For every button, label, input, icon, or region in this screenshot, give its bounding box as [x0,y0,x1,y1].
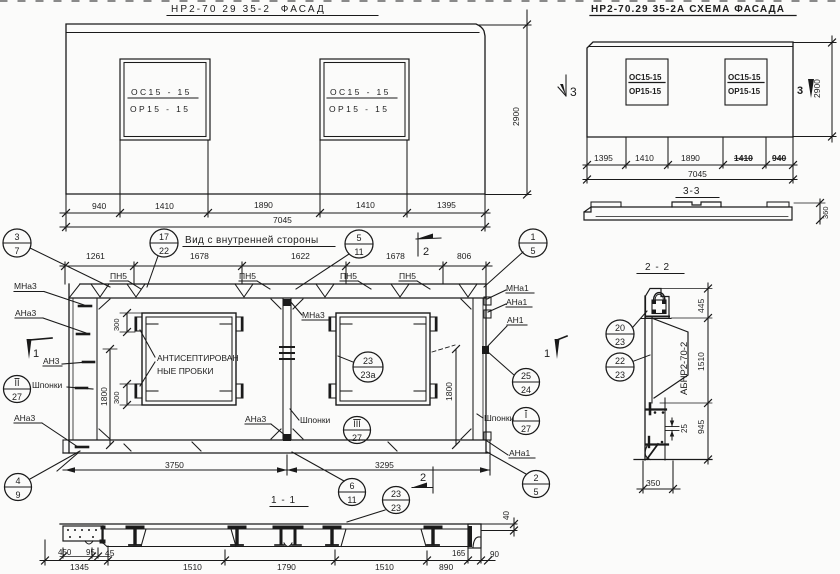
svg-text:360: 360 [821,206,830,219]
svg-text:ОС15 - 15: ОС15 - 15 [131,87,192,97]
svg-text:1410: 1410 [734,153,753,163]
svg-text:27: 27 [12,392,22,402]
svg-text:1622: 1622 [291,251,310,261]
svg-text:АБНР2-70-2: АБНР2-70-2 [679,342,690,395]
svg-text:445: 445 [696,299,706,313]
svg-text:450: 450 [58,548,72,557]
svg-text:1890: 1890 [681,153,700,163]
svg-text:940: 940 [772,153,786,163]
svg-text:1678: 1678 [190,251,209,261]
svg-text:1410: 1410 [356,200,375,210]
svg-text:3-3: 3-3 [683,186,700,197]
svg-text:1510: 1510 [696,352,706,371]
svg-text:300: 300 [112,318,121,331]
svg-text:5: 5 [356,233,361,243]
svg-text:23: 23 [615,370,625,380]
svg-text:АН1: АН1 [507,315,524,325]
svg-text:ОР15-15: ОР15-15 [629,87,662,96]
svg-text:27: 27 [352,433,362,443]
svg-text:ОС15-15: ОС15-15 [629,73,662,82]
svg-text:НР2-70 29 35-2 ФАСАД: НР2-70 29 35-2 ФАСАД [171,4,326,15]
svg-text:Шпонки: Шпонки [300,415,331,425]
svg-text:1: 1 [530,232,535,242]
svg-text:I: I [525,410,528,420]
svg-text:95: 95 [86,548,95,557]
svg-text:1: 1 [544,348,550,360]
svg-text:АНа3: АНа3 [14,413,36,423]
svg-text:90: 90 [490,550,499,559]
svg-text:МНа3: МНа3 [302,310,325,320]
svg-text:165: 165 [452,549,466,558]
svg-text:22: 22 [615,356,625,366]
svg-text:23: 23 [363,356,373,366]
svg-text:22: 22 [159,246,169,256]
svg-text:НЫЕ ПРОБКИ: НЫЕ ПРОБКИ [157,366,214,376]
svg-text:7045: 7045 [688,169,707,179]
svg-text:2900: 2900 [511,107,521,126]
svg-text:1510: 1510 [183,562,202,572]
svg-text:1395: 1395 [594,153,613,163]
svg-text:ОС15 - 15: ОС15 - 15 [330,87,391,97]
svg-text:40: 40 [502,511,511,520]
svg-text:5: 5 [530,246,535,256]
svg-text:20: 20 [615,323,625,333]
svg-text:2: 2 [420,472,426,484]
svg-text:350: 350 [646,478,660,488]
svg-text:23: 23 [391,503,401,513]
svg-text:Вид с внутренней стороны: Вид с внутренней стороны [185,235,319,246]
svg-text:ОР15 - 15: ОР15 - 15 [130,104,190,114]
svg-text:1345: 1345 [70,562,89,572]
svg-text:23: 23 [391,489,401,499]
svg-text:11: 11 [354,247,363,257]
svg-text:3: 3 [14,232,19,242]
svg-text:1800: 1800 [444,382,454,401]
svg-text:2: 2 [423,246,429,258]
svg-text:II: II [14,378,19,388]
svg-text:45: 45 [105,548,115,558]
svg-text:1510: 1510 [375,562,394,572]
svg-text:ОР15-15: ОР15-15 [728,87,761,96]
svg-text:ПН5: ПН5 [239,271,256,281]
svg-text:АНа3: АНа3 [15,308,37,318]
svg-text:III: III [353,419,361,429]
svg-text:6: 6 [349,481,354,491]
svg-text:ПН5: ПН5 [399,271,416,281]
svg-text:1410: 1410 [155,201,174,211]
svg-text:806: 806 [457,251,471,261]
svg-text:1890: 1890 [254,200,273,210]
svg-text:АНа1: АНа1 [509,448,531,458]
svg-text:27: 27 [521,424,531,434]
svg-text:3750: 3750 [165,460,184,470]
svg-text:2: 2 [533,473,538,483]
svg-text:300: 300 [112,391,121,404]
svg-text:25: 25 [521,371,531,381]
svg-text:1790: 1790 [277,562,296,572]
svg-text:МНа3: МНа3 [14,281,37,291]
svg-text:1 - 1: 1 - 1 [271,495,296,506]
svg-text:945: 945 [696,420,706,434]
svg-text:25: 25 [680,424,689,433]
svg-text:АНа3: АНа3 [245,414,267,424]
svg-text:2 - 2: 2 - 2 [645,262,670,273]
svg-text:23а: 23а [360,370,375,380]
svg-text:Шпонки: Шпонки [484,413,515,423]
svg-text:890: 890 [439,562,453,572]
svg-text:3: 3 [570,85,577,99]
svg-text:3295: 3295 [375,460,394,470]
svg-text:1: 1 [33,348,39,360]
svg-text:9: 9 [15,490,20,500]
svg-text:3: 3 [797,85,803,97]
svg-text:1410: 1410 [635,153,654,163]
svg-text:7: 7 [14,246,19,256]
svg-text:24: 24 [521,385,531,395]
svg-text:5: 5 [533,487,538,497]
svg-text:ПН5: ПН5 [110,271,127,281]
svg-text:1261: 1261 [86,251,105,261]
svg-text:АН3: АН3 [43,356,60,366]
svg-text:ОС15-15: ОС15-15 [728,73,761,82]
svg-text:АНа1: АНа1 [506,297,528,307]
svg-text:1800: 1800 [99,387,109,406]
svg-text:7045: 7045 [273,215,292,225]
svg-text:2900: 2900 [812,79,822,98]
svg-text:11: 11 [347,495,356,505]
svg-text:АНТИСЕПТИРОВАН: АНТИСЕПТИРОВАН [157,353,239,363]
svg-text:ОР15 - 15: ОР15 - 15 [329,104,389,114]
svg-text:1395: 1395 [437,200,456,210]
svg-text:17: 17 [159,232,169,242]
svg-text:Шпонки: Шпонки [32,380,63,390]
svg-text:4: 4 [15,476,20,486]
svg-text:НР2-70.29 35-2А СХЕМА ФАСАДА: НР2-70.29 35-2А СХЕМА ФАСАДА [591,4,785,15]
svg-text:940: 940 [92,201,106,211]
svg-text:1678: 1678 [386,251,405,261]
svg-text:23: 23 [615,337,625,347]
svg-text:МНа1: МНа1 [506,283,529,293]
svg-text:ПН5: ПН5 [340,271,357,281]
